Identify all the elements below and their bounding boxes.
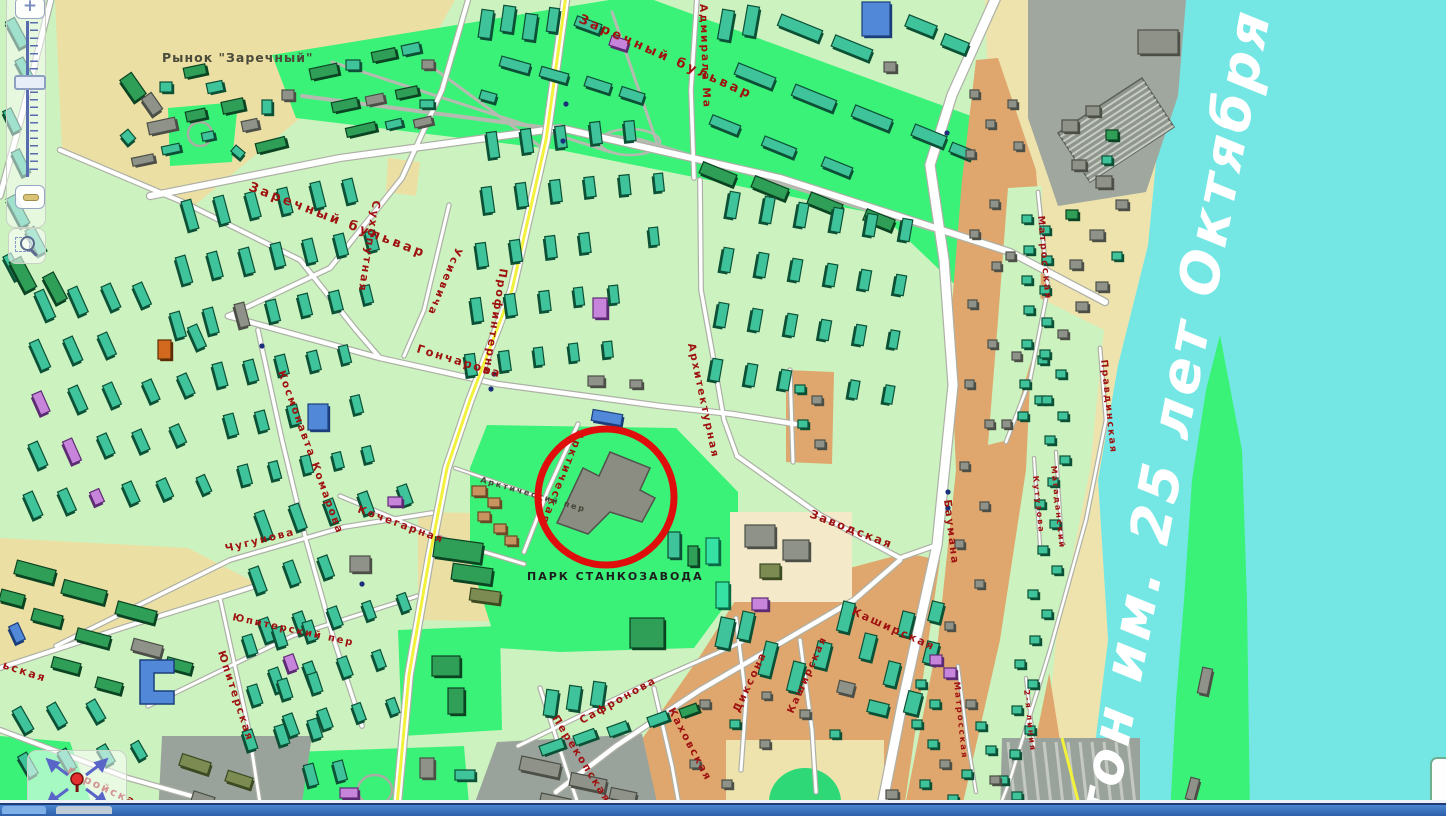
building <box>760 564 782 580</box>
building-body <box>1058 330 1068 338</box>
building <box>1138 30 1180 56</box>
building <box>388 497 404 508</box>
traffic-dot <box>945 489 950 494</box>
magnifier-handle-icon <box>29 248 37 256</box>
map-canvas[interactable]: Рынок "Заречный"Заречный бульварЗаречный… <box>0 0 1446 816</box>
building <box>1070 260 1084 271</box>
building-body <box>624 121 636 142</box>
building-body <box>1022 276 1032 284</box>
building <box>448 688 466 716</box>
building-body <box>930 700 940 708</box>
building-body <box>762 692 771 699</box>
building-body <box>980 502 989 510</box>
building-body <box>928 740 938 748</box>
building-body <box>593 298 607 318</box>
building-body <box>1042 610 1052 618</box>
building <box>505 536 519 547</box>
building <box>158 340 173 361</box>
building-body <box>975 580 984 588</box>
building-body <box>988 340 997 348</box>
street-label: ПАРК СТАНКОЗАВОДА <box>527 570 704 583</box>
building <box>340 788 360 800</box>
building-body <box>1076 302 1088 311</box>
building-body <box>966 700 976 708</box>
building-body <box>688 546 698 566</box>
building-body <box>494 524 506 533</box>
building-body <box>158 340 171 359</box>
building-body <box>700 700 710 708</box>
building-body <box>1022 340 1032 348</box>
building-body <box>912 720 922 728</box>
building <box>494 524 508 535</box>
building <box>308 404 330 432</box>
building-body <box>1116 200 1128 209</box>
building-body <box>1096 282 1108 291</box>
building-body <box>1024 306 1034 314</box>
zoom-slider-handle[interactable] <box>14 75 46 90</box>
building <box>160 82 174 94</box>
building-body <box>619 175 631 196</box>
building-body <box>985 420 994 428</box>
building-body <box>1002 420 1011 428</box>
building <box>630 618 666 650</box>
building-body <box>1028 680 1038 688</box>
building-body <box>505 536 517 545</box>
traffic-dot <box>488 386 493 391</box>
building-body <box>965 380 974 388</box>
building-body <box>760 564 780 578</box>
building-body <box>448 688 464 714</box>
building <box>651 173 664 194</box>
window-bottom-bar <box>0 803 1446 816</box>
building-body <box>815 440 825 448</box>
building <box>1076 302 1090 313</box>
building <box>420 100 436 110</box>
building-body <box>340 788 358 798</box>
building <box>420 758 436 780</box>
building-body <box>986 746 996 754</box>
building <box>601 341 614 360</box>
red-pin-icon <box>71 773 83 792</box>
building-body <box>1066 210 1078 219</box>
building-body <box>488 498 500 507</box>
building-body <box>948 795 958 803</box>
zoom-control-panel: + <box>6 0 46 228</box>
building-body <box>886 790 898 799</box>
building-body <box>584 176 596 197</box>
building <box>1072 160 1088 172</box>
building-body <box>1058 412 1068 420</box>
building <box>617 175 631 198</box>
building-body <box>968 300 977 308</box>
building <box>478 512 492 523</box>
building-body <box>962 770 972 778</box>
taskbar-button[interactable] <box>56 806 112 814</box>
building <box>944 668 958 680</box>
building-body <box>1112 252 1122 260</box>
street-label: Рынок "Заречный" <box>162 50 314 65</box>
traffic-dot <box>563 101 568 106</box>
building-body <box>1038 546 1048 554</box>
building-body <box>752 598 768 610</box>
building-body <box>1020 380 1030 388</box>
building-body <box>970 90 979 98</box>
building <box>862 2 892 38</box>
building-body <box>990 776 1000 784</box>
building-body <box>1012 792 1022 800</box>
building-body <box>654 173 665 192</box>
building-body <box>940 760 950 768</box>
building-body <box>668 532 680 558</box>
building-body <box>649 227 660 246</box>
building <box>884 62 898 74</box>
building <box>606 285 619 306</box>
building-body <box>992 262 1001 270</box>
building-body <box>1022 215 1032 223</box>
building-body <box>630 618 664 648</box>
building <box>716 582 731 610</box>
traffic-dot <box>359 581 364 586</box>
building-body <box>568 343 579 362</box>
building <box>1096 282 1110 293</box>
building <box>1062 120 1080 134</box>
building <box>432 656 462 678</box>
building-body <box>282 90 294 100</box>
building-body <box>432 656 460 676</box>
building-body <box>160 82 172 92</box>
traffic-dot <box>560 138 565 143</box>
building-body <box>884 62 896 72</box>
zoom-in-button[interactable]: + <box>15 0 45 19</box>
building-body <box>1028 590 1038 598</box>
building-body <box>388 497 402 506</box>
building-body <box>609 285 620 304</box>
building-body <box>1008 100 1017 108</box>
building-body <box>1056 370 1066 378</box>
traffic-dot <box>259 343 264 348</box>
building-body <box>1030 636 1040 644</box>
building-body <box>533 347 544 366</box>
building-body <box>579 232 591 253</box>
building-body <box>1062 120 1078 132</box>
building-body <box>862 2 890 36</box>
building-body <box>945 622 954 630</box>
building <box>262 100 274 116</box>
building-body <box>798 420 808 428</box>
building-body <box>1040 350 1050 358</box>
building-body <box>1086 106 1100 116</box>
building-body <box>966 150 975 158</box>
building-body <box>1106 130 1118 140</box>
building <box>346 60 362 72</box>
building-body <box>588 376 604 386</box>
zoom-slider-ticks <box>30 22 38 176</box>
building <box>622 121 636 144</box>
building-body <box>830 730 840 738</box>
building-body <box>1052 566 1062 574</box>
building-body <box>960 462 969 470</box>
building <box>1096 176 1114 190</box>
building <box>282 90 296 102</box>
building <box>1066 210 1080 221</box>
building-body <box>1060 456 1070 464</box>
building <box>1116 200 1130 211</box>
building-body <box>1045 436 1055 444</box>
building-body <box>716 582 729 608</box>
building-body <box>916 680 926 688</box>
building-body <box>760 740 770 748</box>
building-body <box>1012 352 1021 360</box>
building-body <box>1012 706 1022 714</box>
building-body <box>930 655 942 665</box>
building-body <box>545 235 558 258</box>
taskbar-button[interactable] <box>2 806 46 814</box>
building-body <box>420 758 434 778</box>
building-body <box>472 486 486 496</box>
building <box>455 770 477 782</box>
building-body <box>550 179 563 202</box>
building-body <box>1042 318 1052 326</box>
building-body <box>1090 230 1104 240</box>
building-body <box>308 404 328 430</box>
building-body <box>722 780 732 788</box>
building <box>472 486 488 498</box>
building <box>646 227 659 248</box>
traffic-dot <box>944 130 949 135</box>
building-body <box>800 710 810 718</box>
building <box>422 60 436 71</box>
building <box>350 556 372 574</box>
building-body <box>783 540 809 560</box>
building-body <box>920 780 930 788</box>
building-body <box>745 525 775 547</box>
building-body <box>795 385 805 393</box>
building-body <box>573 287 584 306</box>
building-body <box>1072 160 1086 170</box>
building-body <box>986 120 995 128</box>
building-body <box>1138 30 1178 54</box>
building-body <box>478 512 490 521</box>
building-body <box>1096 176 1112 188</box>
building-body <box>201 131 214 141</box>
building <box>930 655 944 667</box>
building-body <box>1018 412 1028 420</box>
building-body <box>346 60 360 70</box>
building-body <box>603 341 614 358</box>
building-body <box>1042 396 1052 404</box>
building <box>752 598 770 612</box>
building <box>1106 130 1120 142</box>
building-body <box>970 230 979 238</box>
building-body <box>730 720 740 728</box>
building-body <box>1102 156 1112 164</box>
building-body <box>812 396 822 404</box>
building-body <box>1014 142 1023 150</box>
building-body <box>944 668 956 678</box>
building-body <box>420 100 434 108</box>
bottom-right-map-button[interactable] <box>1430 757 1446 807</box>
building <box>1090 230 1106 242</box>
building <box>668 532 682 560</box>
building-body <box>455 770 475 780</box>
minus-icon <box>23 194 39 201</box>
building-body <box>976 722 986 730</box>
map-application-window: Рынок "Заречный"Заречный бульварЗаречный… <box>0 0 1446 816</box>
building <box>1086 106 1102 118</box>
building-body <box>1006 252 1015 260</box>
building <box>886 790 900 801</box>
zoom-out-button[interactable] <box>15 185 45 209</box>
building-body <box>1015 660 1025 668</box>
building-body <box>422 60 434 69</box>
magnifier-zoom-select-button[interactable] <box>8 228 46 264</box>
building-body <box>1024 246 1034 254</box>
building-body <box>706 538 719 564</box>
building <box>488 498 502 509</box>
building-body <box>262 100 272 114</box>
building-body <box>539 290 551 311</box>
building-body <box>555 125 568 148</box>
building-body <box>1010 750 1020 758</box>
building-body <box>990 200 999 208</box>
building-body <box>350 556 370 572</box>
building-body <box>1070 260 1082 269</box>
building <box>783 540 811 562</box>
building <box>588 376 606 388</box>
building-body <box>590 121 603 144</box>
building <box>745 525 777 549</box>
building <box>706 538 721 566</box>
building <box>593 298 609 320</box>
building <box>688 546 700 568</box>
zoom-slider-track[interactable] <box>26 21 29 177</box>
building-body <box>566 685 581 710</box>
building-body <box>630 380 642 388</box>
